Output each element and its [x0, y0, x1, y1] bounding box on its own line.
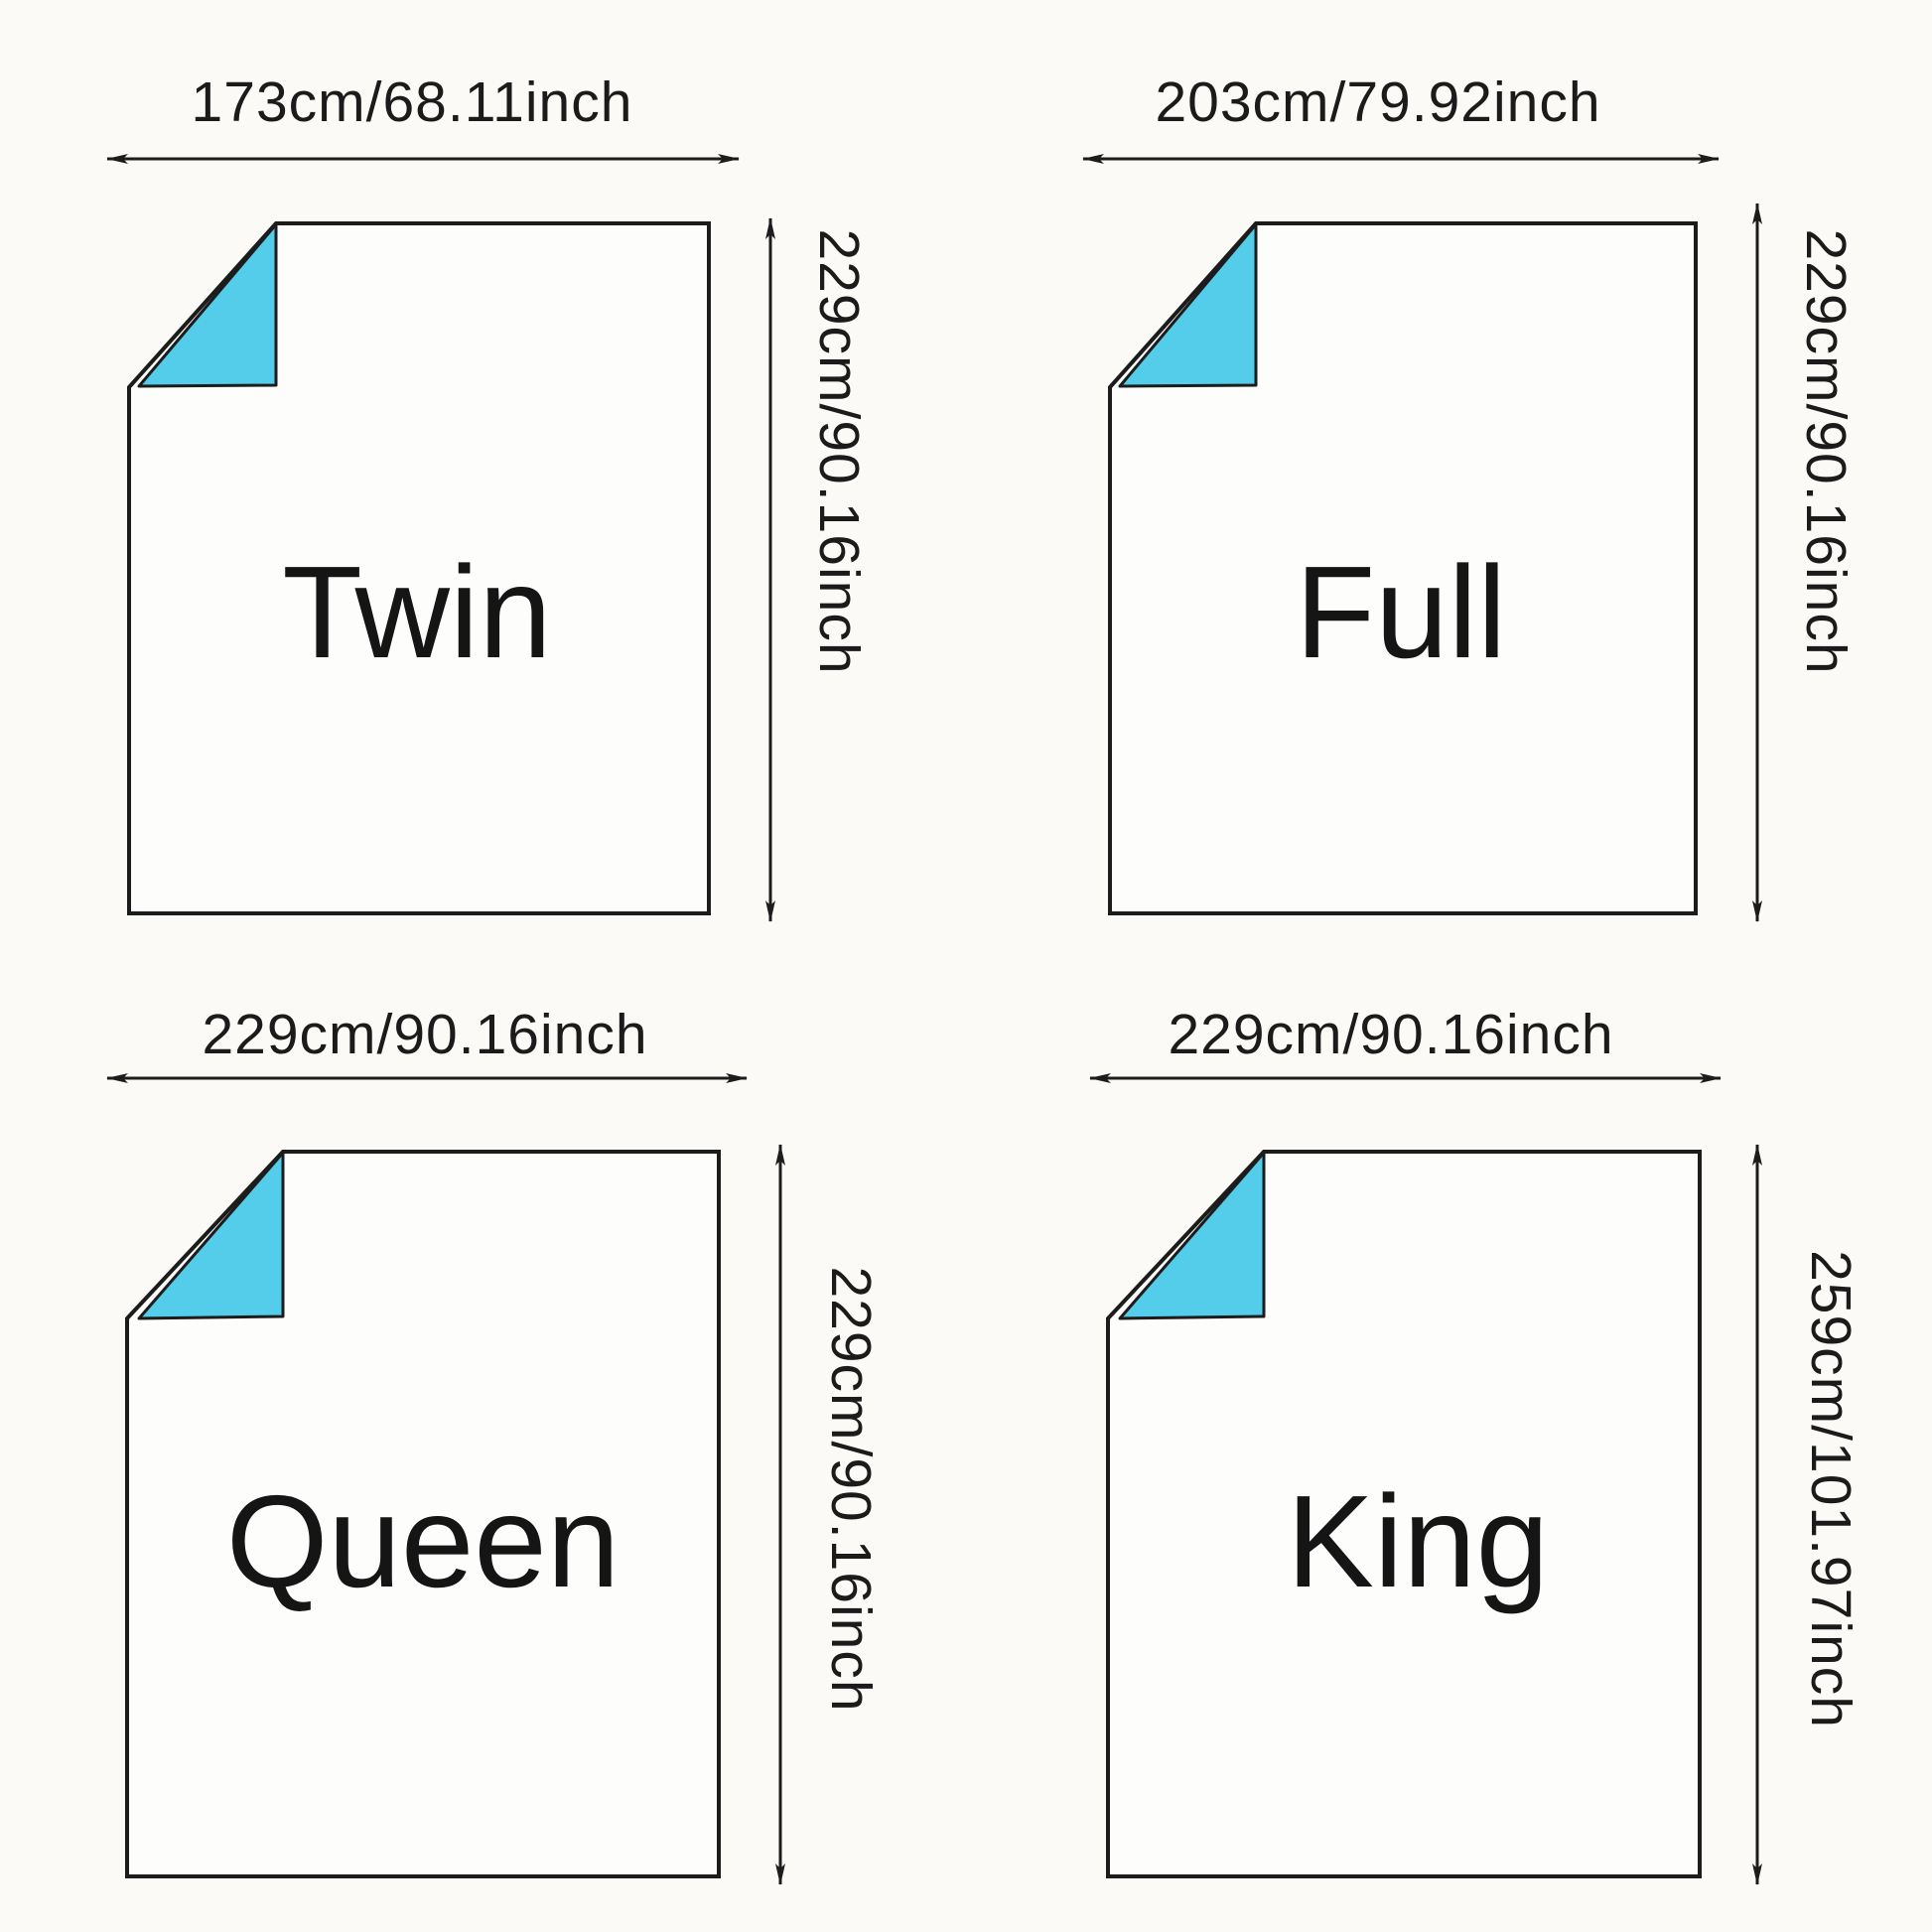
size-label: Full [1296, 539, 1507, 685]
width-label: 203cm/79.92inch [1155, 70, 1600, 134]
panel-king: 229cm/90.16inch King 259cm/101.97inch [966, 966, 1932, 1932]
panel-full: 203cm/79.92inch Full 229cm/90.16inch [966, 0, 1932, 966]
panel-full-canvas: 203cm/79.92inch Full 229cm/90.16inch [966, 0, 1932, 966]
width-label: 173cm/68.11inch [192, 70, 633, 134]
panel-twin: 173cm/68.11inch Twin 229cm/90.16inch [0, 0, 966, 966]
height-label: 259cm/101.97inch [1799, 1250, 1863, 1728]
fold-corner [139, 1153, 283, 1318]
fold-corner [1120, 1153, 1264, 1318]
width-label: 229cm/90.16inch [202, 1003, 647, 1066]
size-chart-diagram: 173cm/68.11inch Twin 229cm/90.16inch 203… [0, 0, 1932, 1932]
size-label: King [1287, 1468, 1549, 1614]
panel-queen: 229cm/90.16inch Queen 229cm/90.16inch [0, 966, 966, 1932]
fold-corner [139, 224, 276, 386]
width-label: 229cm/90.16inch [1168, 1003, 1613, 1066]
height-label: 229cm/90.16inch [819, 1266, 883, 1712]
fold-corner [1120, 224, 1256, 386]
size-label: Queen [226, 1468, 620, 1614]
height-label: 229cm/90.16inch [1794, 228, 1858, 674]
panel-queen-canvas: 229cm/90.16inch Queen 229cm/90.16inch [0, 966, 966, 1932]
panel-king-canvas: 229cm/90.16inch King 259cm/101.97inch [966, 966, 1932, 1932]
panel-twin-canvas: 173cm/68.11inch Twin 229cm/90.16inch [0, 0, 966, 966]
size-label: Twin [282, 539, 551, 685]
height-label: 229cm/90.16inch [807, 228, 871, 674]
